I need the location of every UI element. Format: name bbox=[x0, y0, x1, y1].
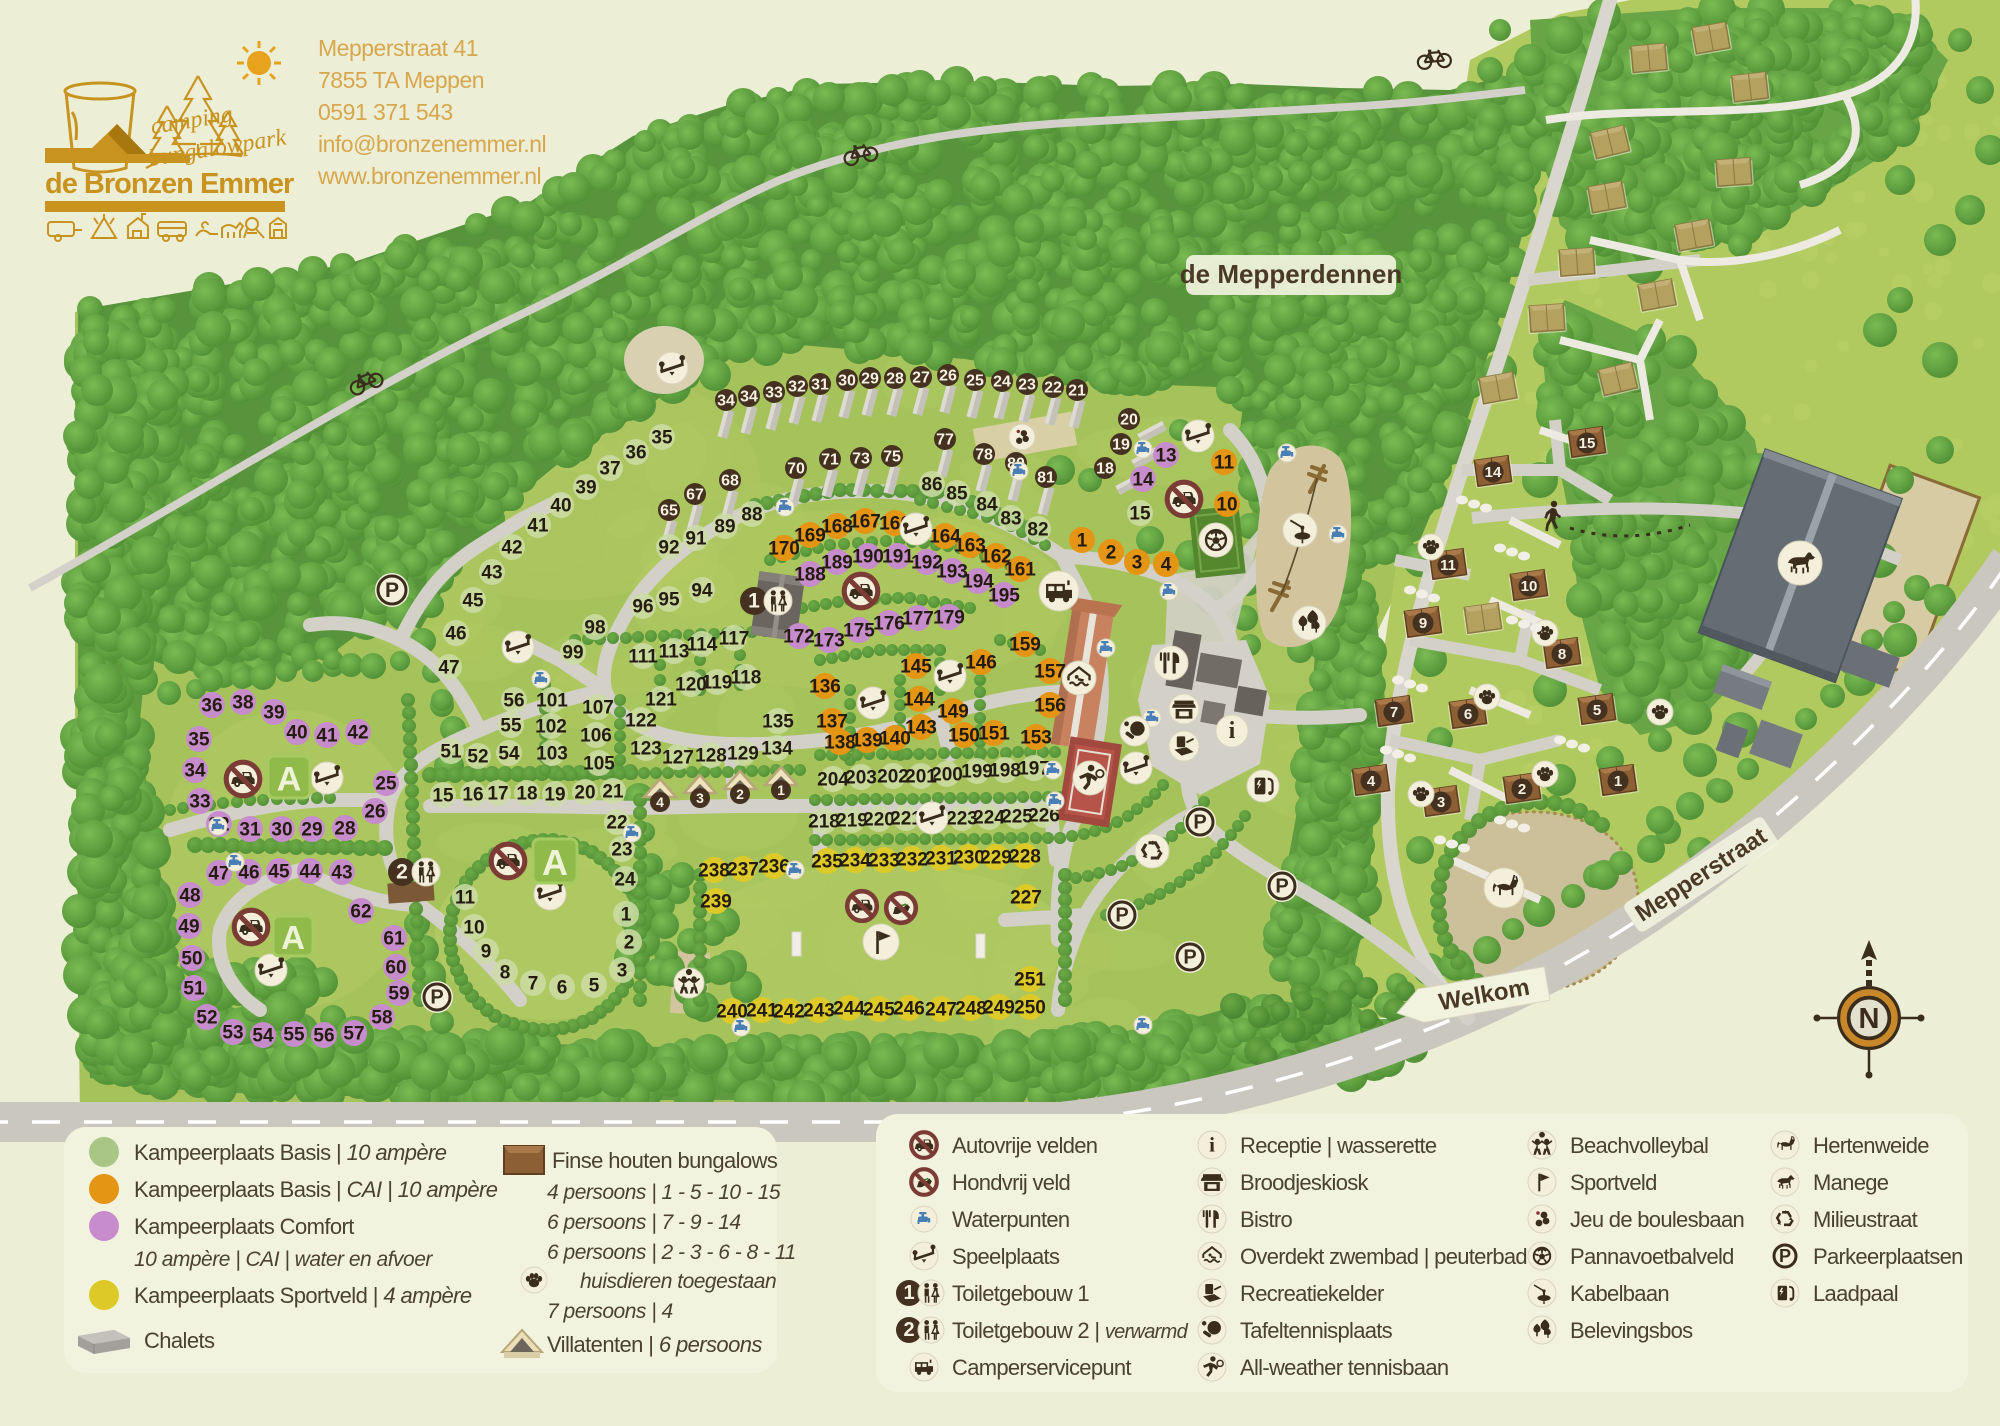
svg-text:27: 27 bbox=[912, 370, 930, 387]
svg-text:14: 14 bbox=[1485, 464, 1502, 481]
svg-text:21: 21 bbox=[602, 782, 624, 803]
svg-text:149: 149 bbox=[937, 702, 969, 723]
svg-text:61: 61 bbox=[383, 929, 405, 950]
svg-text:17: 17 bbox=[487, 784, 508, 805]
svg-text:91: 91 bbox=[685, 529, 707, 550]
svg-text:71: 71 bbox=[821, 452, 839, 469]
svg-text:244: 244 bbox=[833, 999, 865, 1020]
svg-text:Kampeerplaats Comfort: Kampeerplaats Comfort bbox=[134, 1214, 354, 1239]
svg-text:102: 102 bbox=[535, 717, 567, 738]
svg-text:18: 18 bbox=[516, 784, 537, 805]
svg-text:Sportveld: Sportveld bbox=[1570, 1170, 1657, 1195]
svg-text:59: 59 bbox=[388, 984, 409, 1005]
svg-text:18: 18 bbox=[1096, 461, 1114, 478]
svg-text:1: 1 bbox=[903, 1282, 914, 1304]
svg-text:228: 228 bbox=[1009, 847, 1041, 868]
svg-text:232: 232 bbox=[896, 850, 928, 871]
svg-text:238: 238 bbox=[698, 861, 730, 882]
svg-text:40: 40 bbox=[286, 723, 307, 744]
svg-text:15: 15 bbox=[1579, 435, 1596, 452]
svg-text:204: 204 bbox=[817, 770, 849, 791]
svg-text:236: 236 bbox=[758, 857, 790, 878]
svg-text:139: 139 bbox=[851, 731, 883, 752]
svg-text:Bistro: Bistro bbox=[1240, 1207, 1293, 1232]
svg-text:144: 144 bbox=[903, 690, 935, 711]
svg-text:128: 128 bbox=[695, 746, 727, 767]
svg-text:23: 23 bbox=[611, 840, 632, 861]
svg-text:143: 143 bbox=[905, 718, 937, 739]
svg-text:134: 134 bbox=[761, 739, 793, 760]
svg-text:30: 30 bbox=[271, 820, 292, 841]
svg-text:227: 227 bbox=[1010, 888, 1042, 909]
svg-text:2: 2 bbox=[903, 1319, 914, 1341]
svg-text:88: 88 bbox=[741, 505, 762, 526]
svg-text:101: 101 bbox=[536, 691, 568, 712]
svg-text:24: 24 bbox=[614, 870, 636, 891]
svg-text:47: 47 bbox=[438, 658, 459, 679]
svg-text:52: 52 bbox=[196, 1008, 217, 1029]
svg-text:25: 25 bbox=[966, 373, 984, 390]
svg-text:32: 32 bbox=[788, 379, 806, 396]
svg-text:156: 156 bbox=[1034, 696, 1066, 717]
svg-text:73: 73 bbox=[852, 451, 870, 468]
svg-text:info@bronzenemmer.nl: info@bronzenemmer.nl bbox=[318, 131, 546, 157]
svg-text:14: 14 bbox=[1132, 470, 1154, 491]
svg-text:Mepperstraat 41: Mepperstraat 41 bbox=[318, 35, 478, 61]
svg-text:P: P bbox=[1183, 947, 1196, 969]
svg-text:4: 4 bbox=[1367, 773, 1376, 790]
svg-text:195: 195 bbox=[988, 586, 1020, 607]
svg-text:117: 117 bbox=[719, 629, 750, 650]
svg-text:39: 39 bbox=[263, 703, 284, 724]
svg-text:Kampeerplaats Sportveld | 4 am: Kampeerplaats Sportveld | 4 ampère bbox=[134, 1283, 472, 1308]
svg-text:25: 25 bbox=[375, 774, 397, 795]
svg-text:92: 92 bbox=[658, 538, 679, 559]
svg-text:de Bronzen Emmer: de Bronzen Emmer bbox=[45, 168, 294, 200]
svg-text:127: 127 bbox=[662, 748, 694, 769]
svg-text:P: P bbox=[1115, 905, 1128, 927]
svg-text:Recreatiekelder: Recreatiekelder bbox=[1240, 1281, 1384, 1306]
svg-text:179: 179 bbox=[933, 608, 965, 629]
svg-text:29: 29 bbox=[301, 820, 322, 841]
svg-text:34: 34 bbox=[717, 393, 735, 410]
svg-text:82: 82 bbox=[1027, 520, 1048, 541]
svg-text:huisdieren toegestaan: huisdieren toegestaan bbox=[580, 1270, 776, 1293]
svg-text:Jeu de boulesbaan: Jeu de boulesbaan bbox=[1570, 1207, 1744, 1232]
svg-text:3: 3 bbox=[1437, 794, 1445, 811]
svg-text:33: 33 bbox=[189, 792, 210, 813]
svg-text:113: 113 bbox=[659, 642, 690, 663]
svg-text:2: 2 bbox=[736, 786, 744, 802]
svg-text:54: 54 bbox=[498, 744, 520, 765]
svg-text:Belevingsbos: Belevingsbos bbox=[1570, 1318, 1693, 1343]
svg-text:7: 7 bbox=[528, 974, 539, 995]
svg-text:57: 57 bbox=[343, 1024, 364, 1045]
svg-text:55: 55 bbox=[283, 1025, 305, 1046]
svg-text:Kampeerplaats Basis | 10 ampèr: Kampeerplaats Basis | 10 ampère bbox=[134, 1140, 447, 1165]
svg-text:2: 2 bbox=[396, 860, 408, 883]
svg-text:53: 53 bbox=[222, 1023, 243, 1044]
svg-text:4 persoons | 1 - 5 - 10 - 15: 4 persoons | 1 - 5 - 10 - 15 bbox=[547, 1181, 781, 1204]
svg-text:43: 43 bbox=[481, 563, 502, 584]
svg-text:11: 11 bbox=[1440, 557, 1456, 574]
svg-text:103: 103 bbox=[536, 744, 568, 765]
svg-text:4: 4 bbox=[1161, 555, 1172, 576]
svg-text:247: 247 bbox=[925, 1000, 957, 1021]
svg-text:201: 201 bbox=[905, 767, 937, 788]
svg-text:34: 34 bbox=[184, 761, 206, 782]
svg-text:146: 146 bbox=[965, 653, 997, 674]
svg-text:41: 41 bbox=[527, 516, 549, 537]
svg-text:120: 120 bbox=[675, 675, 707, 696]
svg-text:41: 41 bbox=[316, 726, 338, 747]
svg-text:199: 199 bbox=[961, 762, 993, 783]
svg-text:3: 3 bbox=[696, 790, 704, 806]
svg-text:151: 151 bbox=[978, 724, 1010, 745]
svg-text:136: 136 bbox=[809, 677, 841, 698]
svg-text:43: 43 bbox=[331, 863, 352, 884]
svg-text:10: 10 bbox=[463, 918, 484, 939]
svg-text:145: 145 bbox=[900, 657, 932, 678]
svg-text:67: 67 bbox=[686, 487, 704, 504]
svg-text:Pannavoetbalveld: Pannavoetbalveld bbox=[1570, 1244, 1734, 1269]
svg-text:A: A bbox=[281, 919, 305, 956]
svg-text:de Mepperdennen: de Mepperdennen bbox=[1180, 259, 1402, 289]
svg-text:10: 10 bbox=[1216, 495, 1237, 516]
svg-text:6 persoons | 7 - 9 - 14: 6 persoons | 7 - 9 - 14 bbox=[547, 1211, 741, 1234]
svg-text:218: 218 bbox=[808, 812, 840, 833]
svg-text:8: 8 bbox=[500, 963, 511, 984]
svg-text:95: 95 bbox=[658, 590, 680, 611]
svg-text:107: 107 bbox=[582, 698, 614, 719]
svg-text:5: 5 bbox=[589, 976, 600, 997]
svg-text:2: 2 bbox=[1106, 543, 1117, 564]
svg-text:Beachvolleybal: Beachvolleybal bbox=[1570, 1133, 1708, 1158]
svg-text:237: 237 bbox=[727, 860, 759, 881]
svg-text:28: 28 bbox=[886, 371, 904, 388]
svg-text:20: 20 bbox=[574, 783, 595, 804]
svg-text:233: 233 bbox=[868, 851, 900, 872]
svg-text:Manege: Manege bbox=[1813, 1170, 1889, 1195]
svg-text:16: 16 bbox=[462, 785, 483, 806]
svg-text:Tafeltennisplaats: Tafeltennisplaats bbox=[1240, 1318, 1393, 1343]
svg-text:Parkeerplaatsen: Parkeerplaatsen bbox=[1813, 1244, 1963, 1269]
svg-text:Waterpunten: Waterpunten bbox=[952, 1207, 1069, 1232]
svg-text:170: 170 bbox=[768, 539, 800, 560]
svg-text:51: 51 bbox=[183, 979, 205, 1000]
svg-text:242: 242 bbox=[773, 1002, 805, 1023]
svg-text:150: 150 bbox=[948, 726, 980, 747]
svg-text:243: 243 bbox=[803, 1001, 835, 1022]
svg-text:52: 52 bbox=[467, 747, 488, 768]
svg-text:2: 2 bbox=[624, 933, 635, 954]
svg-text:56: 56 bbox=[503, 691, 524, 712]
svg-text:1: 1 bbox=[777, 782, 785, 798]
svg-text:Hondvrij veld: Hondvrij veld bbox=[952, 1170, 1070, 1195]
svg-text:1: 1 bbox=[1614, 773, 1622, 790]
svg-text:246: 246 bbox=[893, 999, 925, 1020]
svg-text:31: 31 bbox=[239, 820, 261, 841]
svg-text:1: 1 bbox=[748, 589, 760, 612]
svg-text:70: 70 bbox=[787, 461, 805, 478]
svg-text:62: 62 bbox=[350, 902, 371, 923]
svg-text:P: P bbox=[1779, 1246, 1791, 1266]
svg-text:96: 96 bbox=[632, 597, 653, 618]
svg-text:22: 22 bbox=[1044, 380, 1062, 397]
svg-text:i: i bbox=[1229, 718, 1236, 744]
svg-text:26: 26 bbox=[939, 368, 957, 385]
svg-text:N: N bbox=[1859, 1003, 1880, 1035]
svg-text:35: 35 bbox=[188, 730, 210, 751]
svg-text:176: 176 bbox=[873, 614, 905, 635]
svg-text:33: 33 bbox=[765, 385, 783, 402]
svg-text:46: 46 bbox=[445, 624, 466, 645]
svg-text:20: 20 bbox=[1120, 412, 1138, 429]
svg-text:1: 1 bbox=[1077, 531, 1088, 552]
svg-text:Overdekt zwembad | peuterbad: Overdekt zwembad | peuterbad bbox=[1240, 1244, 1527, 1269]
svg-text:106: 106 bbox=[580, 726, 612, 747]
svg-text:Speelplaats: Speelplaats bbox=[952, 1244, 1060, 1269]
svg-text:173: 173 bbox=[813, 631, 845, 652]
svg-text:189: 189 bbox=[821, 553, 853, 574]
svg-text:111: 111 bbox=[628, 647, 658, 668]
svg-text:19: 19 bbox=[544, 785, 565, 806]
svg-text:122: 122 bbox=[625, 711, 657, 732]
svg-text:40: 40 bbox=[550, 496, 571, 517]
svg-text:24: 24 bbox=[993, 374, 1011, 391]
svg-text:Toiletgebouw 1: Toiletgebouw 1 bbox=[952, 1281, 1089, 1306]
svg-text:190: 190 bbox=[852, 547, 884, 568]
svg-text:123: 123 bbox=[630, 739, 662, 760]
svg-text:98: 98 bbox=[584, 618, 605, 639]
svg-text:114: 114 bbox=[687, 635, 718, 656]
svg-text:6: 6 bbox=[1464, 706, 1472, 723]
svg-text:159: 159 bbox=[1009, 635, 1041, 656]
svg-text:86: 86 bbox=[921, 475, 942, 496]
svg-text:9: 9 bbox=[481, 942, 492, 963]
svg-text:19: 19 bbox=[1112, 437, 1130, 454]
svg-text:99: 99 bbox=[562, 643, 583, 664]
svg-text:249: 249 bbox=[983, 998, 1015, 1019]
svg-text:177: 177 bbox=[902, 609, 934, 630]
svg-text:121: 121 bbox=[645, 690, 677, 711]
svg-text:15: 15 bbox=[1129, 504, 1151, 525]
svg-text:56: 56 bbox=[313, 1026, 334, 1047]
svg-text:37: 37 bbox=[599, 459, 620, 480]
svg-text:105: 105 bbox=[583, 754, 615, 775]
svg-text:239: 239 bbox=[700, 892, 732, 913]
svg-text:2: 2 bbox=[1518, 781, 1526, 798]
svg-text:54: 54 bbox=[252, 1026, 274, 1047]
svg-text:P: P bbox=[1275, 876, 1288, 898]
svg-text:85: 85 bbox=[946, 484, 968, 505]
svg-text:83: 83 bbox=[1000, 509, 1021, 530]
svg-text:55: 55 bbox=[500, 716, 522, 737]
svg-text:1: 1 bbox=[621, 905, 632, 926]
svg-text:39: 39 bbox=[575, 478, 596, 499]
svg-text:248: 248 bbox=[955, 999, 987, 1020]
svg-text:168: 168 bbox=[821, 517, 853, 538]
svg-text:7855 TA Meppen: 7855 TA Meppen bbox=[318, 67, 484, 93]
svg-text:45: 45 bbox=[462, 591, 484, 612]
svg-text:Broodjeskiosk: Broodjeskiosk bbox=[1240, 1170, 1370, 1195]
svg-text:77: 77 bbox=[936, 432, 954, 449]
svg-text:3: 3 bbox=[617, 961, 628, 982]
svg-text:229: 229 bbox=[980, 848, 1012, 869]
svg-text:153: 153 bbox=[1020, 728, 1052, 749]
svg-text:4: 4 bbox=[656, 794, 664, 810]
svg-text:7: 7 bbox=[1390, 704, 1398, 721]
svg-text:P: P bbox=[1193, 812, 1206, 834]
svg-text:47: 47 bbox=[208, 864, 229, 885]
svg-text:75: 75 bbox=[883, 449, 901, 466]
svg-text:31: 31 bbox=[811, 377, 829, 394]
svg-text:Villatenten | 6 persoons: Villatenten | 6 persoons bbox=[547, 1332, 762, 1357]
svg-text:234: 234 bbox=[839, 851, 871, 872]
svg-text:26: 26 bbox=[364, 802, 385, 823]
svg-text:81: 81 bbox=[1037, 470, 1055, 487]
svg-text:36: 36 bbox=[625, 443, 646, 464]
svg-text:49: 49 bbox=[178, 917, 199, 938]
svg-text:Receptie | wasserette: Receptie | wasserette bbox=[1240, 1133, 1437, 1158]
svg-text:51: 51 bbox=[440, 742, 462, 763]
svg-text:Chalets: Chalets bbox=[144, 1328, 215, 1353]
svg-text:203: 203 bbox=[845, 768, 877, 789]
svg-text:35: 35 bbox=[651, 428, 673, 449]
svg-text:P: P bbox=[385, 579, 399, 602]
svg-text:157: 157 bbox=[1034, 662, 1066, 683]
svg-text:29: 29 bbox=[861, 371, 879, 388]
svg-text:Finse houten bungalows: Finse houten bungalows bbox=[552, 1148, 778, 1173]
svg-text:Milieustraat: Milieustraat bbox=[1813, 1207, 1918, 1232]
svg-text:i: i bbox=[1209, 1132, 1215, 1156]
svg-text:Autovrije velden: Autovrije velden bbox=[952, 1133, 1097, 1158]
svg-text:198: 198 bbox=[989, 761, 1021, 782]
svg-text:65: 65 bbox=[660, 503, 678, 520]
svg-text:21: 21 bbox=[1068, 383, 1086, 400]
svg-text:A: A bbox=[542, 842, 568, 883]
svg-text:Toiletgebouw 2 | verwarmd: Toiletgebouw 2 | verwarmd bbox=[952, 1318, 1189, 1343]
svg-text:3: 3 bbox=[1132, 553, 1143, 574]
svg-text:45: 45 bbox=[268, 862, 290, 883]
svg-text:137: 137 bbox=[816, 712, 848, 733]
svg-text:11: 11 bbox=[455, 888, 476, 909]
svg-text:36: 36 bbox=[201, 696, 222, 717]
svg-text:129: 129 bbox=[727, 744, 759, 765]
svg-text:All-weather tennisbaan: All-weather tennisbaan bbox=[1240, 1355, 1448, 1380]
svg-text:15: 15 bbox=[432, 786, 454, 807]
svg-text:Kabelbaan: Kabelbaan bbox=[1570, 1281, 1669, 1306]
svg-text:135: 135 bbox=[762, 712, 794, 733]
svg-text:34: 34 bbox=[740, 389, 758, 406]
svg-text:8: 8 bbox=[1558, 646, 1566, 663]
svg-text:10: 10 bbox=[1521, 578, 1538, 595]
svg-text:118: 118 bbox=[731, 668, 762, 689]
svg-text:68: 68 bbox=[721, 473, 739, 490]
svg-text:Laadpaal: Laadpaal bbox=[1813, 1281, 1898, 1306]
svg-text:84: 84 bbox=[976, 495, 998, 516]
svg-text:28: 28 bbox=[334, 819, 355, 840]
svg-text:44: 44 bbox=[299, 862, 321, 883]
svg-text:245: 245 bbox=[863, 1000, 895, 1021]
svg-text:42: 42 bbox=[347, 723, 368, 744]
svg-text:11: 11 bbox=[1214, 453, 1235, 474]
svg-text:7 persoons | 4: 7 persoons | 4 bbox=[547, 1300, 673, 1323]
svg-text:6: 6 bbox=[557, 978, 568, 999]
svg-text:P: P bbox=[430, 987, 443, 1009]
svg-text:13: 13 bbox=[1155, 446, 1176, 467]
svg-text:48: 48 bbox=[179, 886, 200, 907]
svg-text:161: 161 bbox=[1004, 560, 1036, 581]
svg-text:172: 172 bbox=[783, 627, 815, 648]
svg-text:0591 371 543: 0591 371 543 bbox=[318, 99, 453, 125]
svg-text:A: A bbox=[277, 760, 302, 798]
svg-text:42: 42 bbox=[501, 538, 522, 559]
svg-text:175: 175 bbox=[843, 621, 875, 642]
svg-text:78: 78 bbox=[975, 447, 993, 464]
svg-text:94: 94 bbox=[691, 581, 713, 602]
svg-text:Hertenweide: Hertenweide bbox=[1813, 1133, 1929, 1158]
svg-text:191: 191 bbox=[882, 547, 914, 568]
svg-text:250: 250 bbox=[1014, 998, 1046, 1019]
svg-text:89: 89 bbox=[714, 517, 735, 538]
svg-text:167: 167 bbox=[849, 512, 881, 533]
svg-text:23: 23 bbox=[1018, 377, 1036, 394]
svg-text:Kampeerplaats Basis | CAI | 1: Kampeerplaats Basis | CAI | 10 ampère bbox=[134, 1177, 498, 1202]
svg-text:38: 38 bbox=[232, 693, 253, 714]
svg-text:60: 60 bbox=[385, 958, 406, 979]
svg-text:30: 30 bbox=[838, 373, 856, 390]
svg-text:9: 9 bbox=[1419, 615, 1427, 632]
svg-text:50: 50 bbox=[181, 949, 202, 970]
svg-text:5: 5 bbox=[1593, 702, 1601, 719]
svg-text:Camperservicepunt: Camperservicepunt bbox=[952, 1355, 1131, 1380]
svg-text:10 ampère | CAI | water en afv: 10 ampère | CAI | water en afvoer bbox=[134, 1248, 433, 1271]
svg-text:58: 58 bbox=[371, 1008, 392, 1029]
svg-text:www.bronzenemmer.nl: www.bronzenemmer.nl bbox=[317, 163, 541, 189]
svg-text:202: 202 bbox=[877, 767, 909, 788]
svg-text:251: 251 bbox=[1014, 970, 1046, 991]
svg-text:6 persoons | 2 - 3 - 6 - 8 -: 6 persoons | 2 - 3 - 6 - 8 - 11 bbox=[547, 1241, 796, 1264]
